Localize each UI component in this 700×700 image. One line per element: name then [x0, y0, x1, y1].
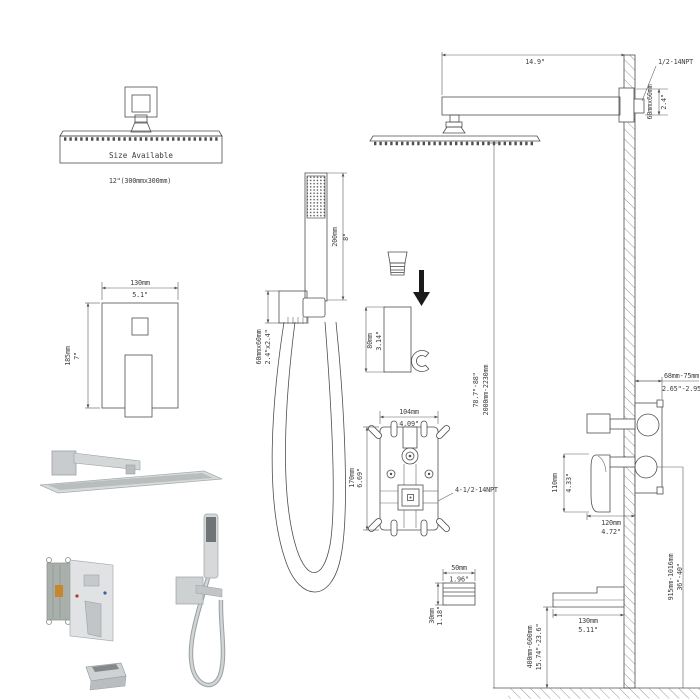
holder-size-mm: 60mmx60mm	[255, 329, 263, 364]
valve-height-in: 6.69"	[356, 468, 364, 487]
valve-height-mm: 170mm	[348, 468, 356, 488]
spray-face	[307, 176, 325, 218]
head-size-label: 12"(300mmx300mm)	[109, 177, 171, 185]
diverter-button	[132, 318, 148, 335]
bracket-body	[384, 307, 411, 372]
spout-height-in: 15.74"-23.6"	[535, 624, 543, 671]
supply-elbow-figure	[388, 252, 430, 306]
handle-length-mm: 110mm	[551, 473, 559, 493]
wand-length-mm: 200mm	[331, 227, 339, 247]
flange-size-mm: 60mmx60mm	[646, 84, 654, 119]
connector-body	[443, 583, 475, 605]
top-port-stem	[403, 427, 417, 448]
valve-thread-leader	[438, 493, 453, 501]
tub-spout-figure: 130mm 5.11" 400mm-600mm 15.74"-23.6"	[526, 587, 624, 688]
arm-length-label: 14.9"	[525, 58, 544, 66]
trim-width-mm: 130mm	[130, 279, 150, 287]
overall-height-in: 78.7"-88"	[472, 372, 480, 407]
head-mount-bracket	[125, 87, 157, 117]
product-photo	[40, 451, 223, 690]
floor-height-in: 36"-40"	[676, 563, 684, 590]
trim-handle	[125, 355, 152, 417]
arm-wall-flange	[619, 88, 634, 122]
spout-profile	[553, 587, 624, 607]
spout-length-in: 5.11"	[578, 626, 597, 634]
depth-in: 2.65"-2.95"	[662, 385, 700, 393]
valve-roughin-figure: 104mm 4.09" 170mm 6.69" 4-1/2-14NPT	[348, 408, 498, 536]
trim-height-mm: 185mm	[64, 346, 72, 366]
connector-width-mm: 50mm	[451, 564, 467, 572]
valve-width-in: 4.09"	[399, 420, 418, 428]
supply-elbow-top	[388, 252, 407, 263]
cold-indicator	[103, 591, 106, 594]
side-valve-body	[635, 403, 662, 493]
arm-thread-nub	[634, 99, 644, 113]
connector-width-in: 1.96"	[449, 576, 468, 584]
bracket-height-in: 3.14"	[375, 331, 383, 350]
floor-hatch	[508, 689, 700, 699]
wand-handle	[303, 298, 325, 317]
arm-thread-label: 1/2-14NPT	[658, 58, 693, 66]
holder-size-in: 2.4"x2.4"	[264, 329, 272, 364]
photo-valve-label	[55, 585, 63, 597]
shower-system-spec-diagram: Size Available 12"(300mmx300mm) 14.9" 1/…	[0, 0, 700, 700]
ball-joint	[443, 127, 465, 133]
flange-size-in: 2.4"	[660, 94, 668, 110]
hose-inner	[285, 322, 333, 573]
valve-thread-label: 4-1/2-14NPT	[455, 486, 498, 494]
trim-width-in: 5.1"	[132, 291, 148, 299]
hose-connector-figure: 50mm 1.96" 30mm 1.18"	[428, 564, 475, 626]
wall-section	[624, 55, 635, 688]
bracket-height-mm: 80mm	[366, 333, 374, 349]
side-width-mm: 120mm	[601, 519, 621, 527]
valve-floor-height-dimension: 915mm-1016mm 36"-40"	[657, 467, 684, 688]
floor-line	[493, 688, 700, 699]
diagram-canvas: Size Available 12"(300mmx300mm) 14.9" 1/…	[0, 0, 700, 700]
spout-height-mm: 400mm-600mm	[526, 625, 534, 668]
holder-bracket-figure: 80mm 3.14"	[366, 307, 429, 372]
hot-indicator	[75, 594, 78, 597]
floor-height-mm: 915mm-1016mm	[667, 554, 675, 601]
connector-height-mm: 30mm	[428, 608, 436, 624]
rain-head-size-figure: Size Available 12"(300mmx300mm)	[60, 87, 222, 185]
supply-elbow-ribs	[390, 263, 405, 275]
overall-height-mm: 2000mm-2230mm	[482, 365, 490, 416]
hose-outer	[272, 322, 345, 592]
down-arrow-icon	[413, 270, 430, 306]
valve-trim-figure: 130mm 5.1" 185mm 7"	[64, 279, 178, 417]
diverter-knob-side	[587, 414, 610, 433]
wand-length-in: 8"	[342, 233, 350, 241]
trim-height-in: 7"	[73, 352, 81, 360]
photo-arm-flange	[52, 451, 76, 475]
spout-length-mm: 130mm	[578, 617, 598, 625]
handle-side	[591, 455, 610, 512]
valve-width-mm: 104mm	[399, 408, 419, 416]
handheld-shower-figure: 200mm 8" 60mmx60mm 2.4"x2.4"	[255, 173, 350, 592]
shower-arm	[442, 97, 620, 115]
shower-head-plate-side	[370, 136, 540, 141]
depth-mm: 68mm-75mm	[664, 372, 699, 380]
bracket-clip	[411, 351, 428, 372]
photo-diverter-button	[84, 575, 99, 586]
rain-head-installed-figure: 14.9" 1/2-14NPT 60mmx60mm 2.4"	[370, 52, 693, 144]
handle-length-in: 4.33"	[565, 473, 573, 492]
photo-spray-face	[206, 517, 216, 542]
overall-height-dimension: 2000mm-2230mm 78.7"-88"	[472, 143, 500, 688]
side-width-in: 4.72"	[601, 528, 620, 536]
connector-height-in: 1.18"	[436, 606, 444, 625]
size-available-label: Size Available	[109, 151, 173, 160]
